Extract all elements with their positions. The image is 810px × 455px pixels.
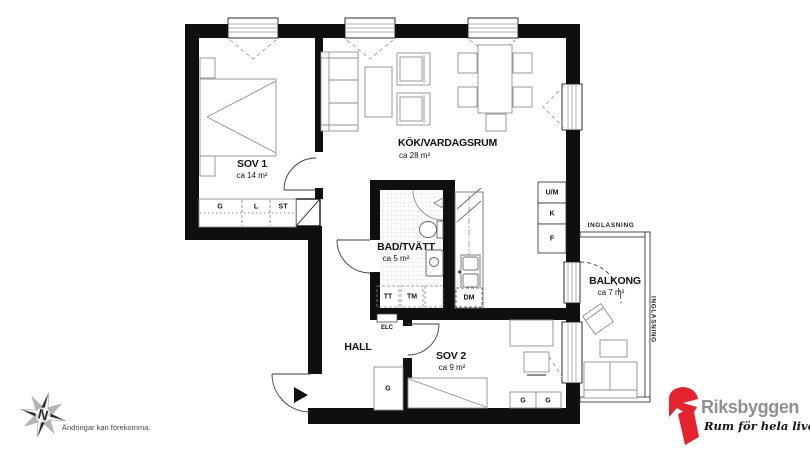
wardrobe-label-l: L: [254, 204, 258, 211]
window-sov2: [562, 322, 582, 383]
room-area-sov1: ca 14 m²: [236, 172, 267, 180]
kitchen-label-k: K: [549, 211, 554, 218]
wall-bath-left1: [370, 190, 380, 240]
wall-bath-kitchen-bottom: [370, 308, 566, 320]
room-label-balkong: BALKONG: [589, 276, 641, 287]
room-label-sov2: SOV 2: [436, 351, 466, 362]
toilet: [420, 221, 444, 238]
balcony-table: [600, 340, 627, 357]
balcony: [580, 232, 650, 402]
window-living-right: [562, 84, 582, 130]
armchair: [397, 93, 430, 125]
window-sov1: [228, 18, 278, 38]
balcony-sofa: [584, 362, 637, 398]
armchair: [397, 53, 430, 85]
laundry-space: [425, 286, 443, 307]
room-label-kok-vardagsrum: KÖK/VARDAGSRUM: [398, 137, 497, 149]
room-label-bad-tvatt: BAD/TVÄTT: [377, 242, 435, 253]
kitchen-label-f: F: [550, 236, 554, 243]
wall-bath-top: [370, 180, 455, 190]
kitchen-label-dm: DM: [464, 295, 475, 302]
room-area-bad-tvatt: ca 5 m²: [383, 255, 410, 263]
dining-chair: [513, 53, 532, 73]
wall-bath-right: [443, 190, 455, 308]
wall-bottom: [308, 408, 580, 424]
wall-bath-left2: [370, 272, 380, 308]
bedside-table: [200, 58, 215, 78]
entrance-arrow: [294, 387, 308, 403]
room-label-sov1: SOV 1: [237, 159, 267, 170]
elc-label: ELC: [381, 325, 393, 331]
coffee-table: [365, 67, 392, 117]
dining-chair: [458, 87, 477, 107]
wall-right-1: [566, 24, 580, 84]
balcony-door: [564, 262, 580, 303]
room-area-balkong: ca 7 m²: [598, 289, 625, 297]
wall-right-3: [566, 303, 580, 322]
door-sov1: [284, 158, 316, 190]
compass-rose: N: [15, 387, 71, 443]
brand-tagline: Rum för hela livet: [704, 419, 810, 433]
wardrobe-label-st: ST: [279, 204, 288, 211]
living-furniture: [321, 45, 532, 131]
dining-set: [458, 45, 532, 131]
glazing-label-right: INGLASNING: [649, 296, 656, 343]
wall-left: [185, 24, 199, 240]
washbasin: [426, 250, 443, 276]
balcony-furniture: [583, 304, 637, 398]
sov2-wardrobe-label-g1: G: [520, 398, 525, 405]
double-bed: [200, 79, 276, 156]
wall-hall-left: [308, 226, 322, 374]
door-sov2: [408, 324, 439, 355]
floorplan-drawing: N: [0, 0, 810, 455]
sov2-wardrobe-label-g2: G: [545, 398, 550, 405]
wall-sov1-bottom: [185, 226, 322, 240]
brand-name: Riksbyggen: [701, 397, 799, 418]
disclaimer-text: Ändringar kan förekomma.: [62, 423, 150, 432]
wardrobe-label-g: G: [217, 204, 222, 211]
floorplan-page: N SOV 1 ca 14 m² KÖK/VARDAGSRUM ca 28 m²…: [0, 0, 810, 455]
elc-cabinet: [377, 314, 397, 322]
dining-chair: [458, 53, 477, 73]
laundry-label-tt: TT: [384, 294, 393, 301]
door-bathroom: [337, 240, 370, 273]
glazing-label-top: INGLASNING: [588, 223, 635, 230]
dining-chair: [513, 87, 532, 107]
sov2-furniture: [374, 320, 561, 410]
kitchen-fixtures: [455, 182, 566, 308]
laundry-label-tm: TM: [407, 294, 417, 301]
sofa: [321, 52, 358, 131]
kitchen-label-um: U/M: [546, 190, 559, 197]
kitchen-sink: [458, 255, 480, 289]
window-living-2: [468, 18, 518, 38]
room-label-hall: HALL: [344, 342, 371, 353]
sov1-furniture: [199, 58, 296, 227]
bedside-table: [200, 156, 215, 176]
wall-right-2: [566, 130, 580, 262]
wall-right-4: [566, 383, 580, 424]
hall-wardrobe-label-g: G: [385, 386, 390, 393]
dining-table: [478, 45, 512, 113]
wall-sov1-jamb: [315, 188, 323, 199]
desk: [510, 320, 553, 346]
shaft: [296, 199, 320, 226]
window-living-1: [345, 18, 395, 38]
room-area-kok-vardagsrum: ca 28 m²: [399, 151, 430, 160]
dining-chair: [486, 114, 506, 131]
room-area-sov2: ca 9 m²: [439, 364, 466, 372]
riksbyggen-logo-icon: [669, 387, 699, 445]
desk-chair: [524, 352, 549, 372]
